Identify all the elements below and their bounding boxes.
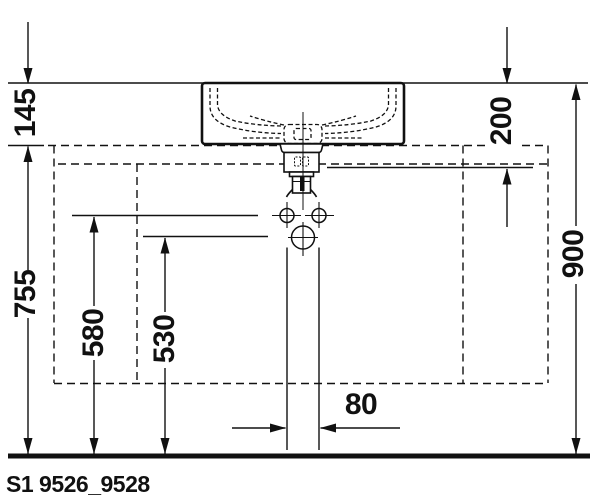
dim-label-580: 580 (79, 309, 109, 358)
dim-label-900: 900 (559, 230, 589, 279)
technical-drawing-sheet: 145 755 580 530 200 900 80 S1 9526_9528 (0, 0, 600, 500)
supply-drain-connections (272, 202, 334, 450)
trap-rod (300, 177, 305, 192)
dim-label-200: 200 (487, 97, 517, 146)
supply-pipes (287, 248, 319, 451)
drawing-canvas (0, 0, 600, 500)
dim-label-755: 755 (11, 270, 41, 319)
drain-trap (280, 144, 323, 197)
trap-foot-right (311, 190, 317, 198)
drawing-code: S1 9526_9528 (6, 471, 150, 498)
trap-body (284, 153, 319, 173)
dim-label-530: 530 (150, 315, 180, 364)
trap-flange (280, 144, 323, 153)
dim-label-145: 145 (11, 89, 41, 138)
dim-label-80: 80 (345, 390, 377, 420)
trap-foot-left (287, 190, 293, 198)
connection-crosshairs (272, 202, 334, 256)
